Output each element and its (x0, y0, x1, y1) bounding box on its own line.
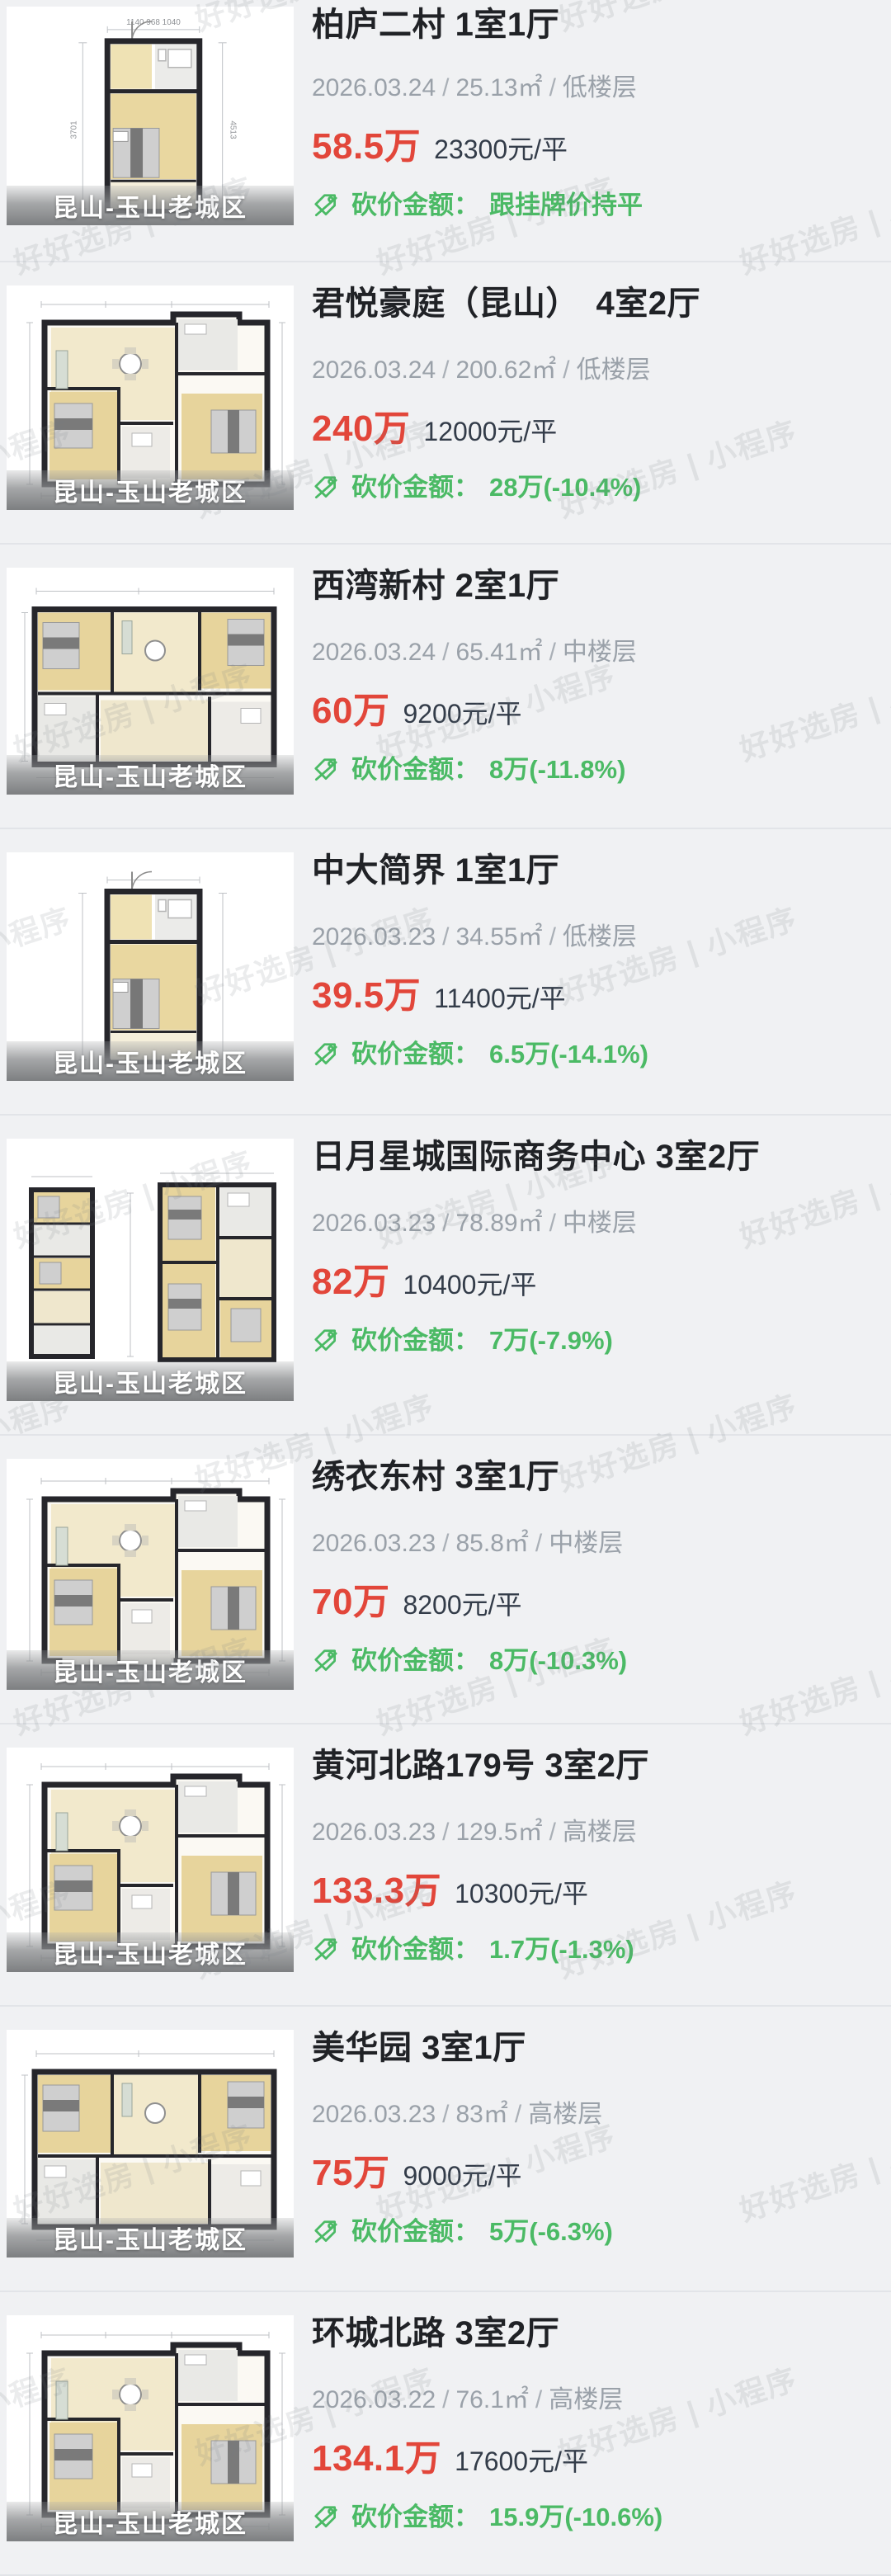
price-cut-label: 砍价金额： (351, 2503, 479, 2532)
price-row: 82万 10400元/平 (312, 1261, 878, 1306)
price-cut-label: 砍价金额： (351, 1935, 479, 1965)
price-cut-value: 15.9万(-10.6%) (489, 2503, 662, 2532)
price-row: 240万 12000元/平 (312, 408, 878, 453)
listing-area: 76.1㎡ (456, 2386, 529, 2413)
location-badge: 昆山-玉山老城区 (7, 186, 294, 225)
listing-info: 绣衣东村 3室1厅 2026.03.23/85.8㎡/中楼层 70万 8200元… (312, 1436, 891, 1723)
listing-area: 85.8㎡ (456, 1530, 529, 1557)
location-badge: 昆山-玉山老城区 (7, 1650, 294, 1690)
listing-meta: 2026.03.23/85.8㎡/中楼层 (312, 1530, 878, 1558)
listing-date: 2026.03.24 (312, 74, 436, 101)
listing-meta: 2026.03.23/34.55㎡/低楼层 (312, 923, 878, 951)
listing-card[interactable]: 昆山-玉山老城区 美华园 3室1厅 2026.03.23/83㎡/高楼层 75万… (0, 2007, 891, 2292)
meta-separator: / (549, 639, 556, 666)
price-cut-row: 砍价金额： 7万(-7.9%) (312, 1326, 878, 1356)
listing-info: 柏庐二村 1室1厅 2026.03.24/25.13㎡/低楼层 58.5万 23… (312, 0, 891, 261)
location-text: 昆山-玉山老城区 (53, 1043, 247, 1079)
price-cut-value: 8万(-11.8%) (489, 755, 625, 785)
location-badge: 昆山-玉山老城区 (7, 1361, 294, 1401)
listing-floor: 高楼层 (549, 2386, 623, 2413)
meta-separator: / (442, 74, 449, 101)
price-cut-row: 砍价金额： 8万(-11.8%) (312, 755, 878, 785)
price-cut-row: 砍价金额： 1.7万(-1.3%) (312, 1935, 878, 1965)
unit-price: 12000元/平 (423, 410, 557, 453)
price-cut-row: 砍价金额： 6.5万(-14.1%) (312, 1040, 878, 1069)
listing-meta: 2026.03.23/78.89㎡/中楼层 (312, 1210, 878, 1238)
location-badge: 昆山-玉山老城区 (7, 1041, 294, 1081)
location-text: 昆山-玉山老城区 (53, 1652, 247, 1688)
price-cut-row: 砍价金额： 跟挂牌价持平 (312, 191, 878, 220)
price-tag-icon (312, 191, 340, 219)
total-price: 58.5万 (312, 125, 421, 168)
listing-title[interactable]: 绣衣东村 3室1厅 (312, 1455, 878, 1498)
location-badge: 昆山-玉山老城区 (7, 2502, 294, 2541)
listing-date: 2026.03.23 (312, 1819, 436, 1846)
price-cut-row: 砍价金额： 15.9万(-10.6%) (312, 2503, 878, 2532)
listing-date: 2026.03.23 (312, 1210, 436, 1237)
floorplan-image[interactable]: 昆山-玉山老城区 (7, 1748, 294, 1972)
listing-info: 中大简界 1室1厅 2026.03.23/34.55㎡/低楼层 39.5万 11… (312, 829, 891, 1114)
listing-area: 129.5㎡ (456, 1819, 543, 1846)
floorplan-image[interactable]: 昆山-玉山老城区 (7, 1139, 294, 1401)
listing-card[interactable]: 昆山-玉山老城区 黄河北路179号 3室2厅 2026.03.23/129.5㎡… (0, 1724, 891, 2007)
listing-title[interactable]: 西湾新村 2室1厅 (312, 564, 878, 607)
listing-card[interactable]: 昆山-玉山老城区 环城北路 3室2厅 2026.03.22/76.1㎡/高楼层 … (0, 2292, 891, 2576)
location-text: 昆山-玉山老城区 (53, 187, 247, 224)
floorplan-image[interactable]: 昆山-玉山老城区 (7, 2030, 294, 2258)
listing-meta: 2026.03.24/25.13㎡/低楼层 (312, 74, 878, 102)
location-badge: 昆山-玉山老城区 (7, 1932, 294, 1972)
listing-meta: 2026.03.22/76.1㎡/高楼层 (312, 2386, 878, 2414)
total-price: 134.1万 (312, 2437, 441, 2480)
price-cut-value: 5万(-6.3%) (489, 2217, 613, 2247)
price-row: 75万 9000元/平 (312, 2152, 878, 2197)
listing-title[interactable]: 黄河北路179号 3室2厅 (312, 1744, 878, 1787)
meta-separator: / (563, 356, 569, 384)
listing-area: 65.41㎡ (456, 639, 543, 666)
listing-card[interactable]: 昆山-玉山老城区 西湾新村 2室1厅 2026.03.24/65.41㎡/中楼层… (0, 545, 891, 829)
listing-info: 日月星城国际商务中心 3室2厅 2026.03.23/78.89㎡/中楼层 82… (312, 1116, 891, 1434)
svg-text:3701: 3701 (69, 120, 78, 139)
price-cut-label: 砍价金额： (351, 473, 479, 502)
floorplan-image[interactable]: 昆山-玉山老城区 (7, 568, 294, 795)
listing-floor: 中楼层 (563, 1210, 637, 1237)
listing-area: 34.55㎡ (456, 923, 543, 951)
price-row: 58.5万 23300元/平 (312, 125, 878, 171)
listing-date: 2026.03.23 (312, 2101, 436, 2128)
price-cut-row: 砍价金额： 5万(-6.3%) (312, 2217, 878, 2247)
unit-price: 23300元/平 (434, 128, 568, 171)
listing-date: 2026.03.24 (312, 639, 436, 666)
total-price: 133.3万 (312, 1870, 441, 1913)
listing-floor: 低楼层 (563, 923, 637, 951)
price-tag-icon (312, 756, 340, 784)
svg-text:1140 968 1040: 1140 968 1040 (126, 18, 181, 27)
listing-info: 君悦豪庭（昆山） 4室2厅 2026.03.24/200.62㎡/低楼层 240… (312, 262, 891, 543)
meta-separator: / (515, 2101, 521, 2128)
price-cut-label: 砍价金额： (351, 2217, 479, 2247)
meta-separator: / (549, 1210, 556, 1237)
meta-separator: / (442, 2101, 449, 2128)
price-row: 70万 8200元/平 (312, 1581, 878, 1626)
svg-text:4513: 4513 (229, 120, 238, 139)
price-row: 39.5万 11400元/平 (312, 974, 878, 1020)
listing-title[interactable]: 君悦豪庭（昆山） 4室2厅 (312, 282, 878, 325)
price-cut-value: 28万(-10.4%) (489, 473, 641, 502)
price-tag-icon (312, 1327, 340, 1355)
listing-meta: 2026.03.23/129.5㎡/高楼层 (312, 1819, 878, 1847)
unit-price: 17600元/平 (455, 2440, 588, 2483)
location-text: 昆山-玉山老城区 (53, 757, 247, 793)
listing-title[interactable]: 环城北路 3室2厅 (312, 2312, 878, 2355)
listing-floor: 低楼层 (563, 74, 637, 101)
price-tag-icon (312, 1647, 340, 1675)
price-cut-value: 7万(-7.9%) (489, 1326, 613, 1356)
price-cut-value: 6.5万(-14.1%) (489, 1040, 648, 1069)
location-text: 昆山-玉山老城区 (53, 2220, 247, 2256)
price-cut-value: 8万(-10.3%) (489, 1646, 627, 1676)
total-price: 39.5万 (312, 974, 421, 1017)
floorplan-image[interactable]: 昆山-玉山老城区 (7, 852, 294, 1081)
total-price: 82万 (312, 1261, 389, 1304)
listing-card[interactable]: 昆山-玉山老城区 日月星城国际商务中心 3室2厅 2026.03.23/78.8… (0, 1116, 891, 1436)
listing-area: 25.13㎡ (456, 74, 543, 101)
listing-title[interactable]: 日月星城国际商务中心 3室2厅 (312, 1135, 878, 1178)
listing-info: 环城北路 3室2厅 2026.03.22/76.1㎡/高楼层 134.1万 17… (312, 2292, 891, 2574)
meta-separator: / (442, 1819, 449, 1846)
listing-floor: 高楼层 (563, 1819, 637, 1846)
listing-area: 78.89㎡ (456, 1210, 543, 1237)
price-cut-value: 1.7万(-1.3%) (489, 1935, 634, 1965)
price-cut-label: 砍价金额： (351, 755, 479, 785)
price-cut-label: 砍价金额： (351, 191, 479, 220)
price-cut-row: 砍价金额： 8万(-10.3%) (312, 1646, 878, 1676)
meta-separator: / (442, 1210, 449, 1237)
listing-info: 黄河北路179号 3室2厅 2026.03.23/129.5㎡/高楼层 133.… (312, 1724, 891, 2005)
listing-card[interactable]: 昆山-玉山老城区 中大简界 1室1厅 2026.03.23/34.55㎡/低楼层… (0, 829, 891, 1116)
meta-separator: / (442, 639, 449, 666)
meta-separator: / (442, 1530, 449, 1557)
listing-date: 2026.03.23 (312, 923, 436, 951)
listing-info: 美华园 3室1厅 2026.03.23/83㎡/高楼层 75万 9000元/平 … (312, 2007, 891, 2291)
location-text: 昆山-玉山老城区 (53, 1363, 247, 1399)
floorplan-image[interactable]: 昆山-玉山老城区 (7, 285, 294, 510)
floorplan-image[interactable]: 昆山-玉山老城区 (7, 1459, 294, 1690)
price-tag-icon (312, 1936, 340, 1964)
meta-separator: / (442, 2386, 449, 2413)
listing-area: 83㎡ (456, 2101, 508, 2128)
listing-title[interactable]: 美华园 3室1厅 (312, 2026, 878, 2069)
price-cut-label: 砍价金额： (351, 1326, 479, 1356)
total-price: 60万 (312, 690, 389, 733)
listing-meta: 2026.03.24/65.41㎡/中楼层 (312, 639, 878, 667)
listing-meta: 2026.03.23/83㎡/高楼层 (312, 2101, 878, 2129)
price-cut-value: 跟挂牌价持平 (489, 191, 643, 220)
listing-floor: 低楼层 (577, 356, 651, 384)
price-cut-label: 砍价金额： (351, 1040, 479, 1069)
meta-separator: / (442, 923, 449, 951)
unit-price: 11400元/平 (434, 977, 566, 1020)
total-price: 75万 (312, 2152, 389, 2195)
meta-separator: / (549, 74, 556, 101)
unit-price: 10300元/平 (455, 1872, 588, 1915)
location-badge: 昆山-玉山老城区 (7, 2218, 294, 2258)
floorplan-image[interactable]: 昆山-玉山老城区 (7, 2315, 294, 2541)
listing-title[interactable]: 柏庐二村 1室1厅 (312, 3, 878, 46)
location-badge: 昆山-玉山老城区 (7, 755, 294, 795)
location-text: 昆山-玉山老城区 (53, 472, 247, 508)
total-price: 240万 (312, 408, 410, 451)
floorplan-image[interactable]: 1140 968 104037014513 昆山-玉山老城区 (7, 7, 294, 225)
unit-price: 10400元/平 (403, 1263, 536, 1306)
listing-card[interactable]: 昆山-玉山老城区 绣衣东村 3室1厅 2026.03.23/85.8㎡/中楼层 … (0, 1436, 891, 1724)
price-tag-icon (312, 1040, 340, 1069)
meta-separator: / (535, 2386, 542, 2413)
meta-separator: / (442, 356, 449, 384)
listing-card[interactable]: 1140 968 104037014513 昆山-玉山老城区 柏庐二村 1室1厅… (0, 0, 891, 262)
price-cut-row: 砍价金额： 28万(-10.4%) (312, 473, 878, 502)
location-text: 昆山-玉山老城区 (53, 2503, 247, 2540)
meta-separator: / (535, 1530, 542, 1557)
listing-date: 2026.03.22 (312, 2386, 436, 2413)
listing-area: 200.62㎡ (456, 356, 557, 384)
location-text: 昆山-玉山老城区 (53, 1934, 247, 1970)
listing-floor: 中楼层 (563, 639, 637, 666)
listing-meta: 2026.03.24/200.62㎡/低楼层 (312, 356, 878, 385)
price-row: 134.1万 17600元/平 (312, 2437, 878, 2483)
meta-separator: / (549, 1819, 556, 1846)
unit-price: 9200元/平 (403, 692, 521, 735)
price-tag-icon (312, 2503, 340, 2531)
listing-floor: 中楼层 (549, 1530, 623, 1557)
meta-separator: / (549, 923, 556, 951)
listing-floor: 高楼层 (528, 2101, 602, 2128)
price-tag-icon (312, 2218, 340, 2246)
price-cut-label: 砍价金额： (351, 1646, 479, 1676)
total-price: 70万 (312, 1581, 389, 1624)
price-tag-icon (312, 474, 340, 502)
listing-card[interactable]: 昆山-玉山老城区 君悦豪庭（昆山） 4室2厅 2026.03.24/200.62… (0, 262, 891, 545)
location-badge: 昆山-玉山老城区 (7, 470, 294, 510)
price-row: 60万 9200元/平 (312, 690, 878, 735)
listing-list: 1140 968 104037014513 昆山-玉山老城区 柏庐二村 1室1厅… (0, 0, 891, 2576)
unit-price: 9000元/平 (403, 2154, 521, 2197)
listing-date: 2026.03.23 (312, 1530, 436, 1557)
listing-title[interactable]: 中大简界 1室1厅 (312, 849, 878, 892)
listing-date: 2026.03.24 (312, 356, 436, 384)
price-row: 133.3万 10300元/平 (312, 1870, 878, 1915)
listing-info: 西湾新村 2室1厅 2026.03.24/65.41㎡/中楼层 60万 9200… (312, 545, 891, 828)
unit-price: 8200元/平 (403, 1583, 521, 1626)
